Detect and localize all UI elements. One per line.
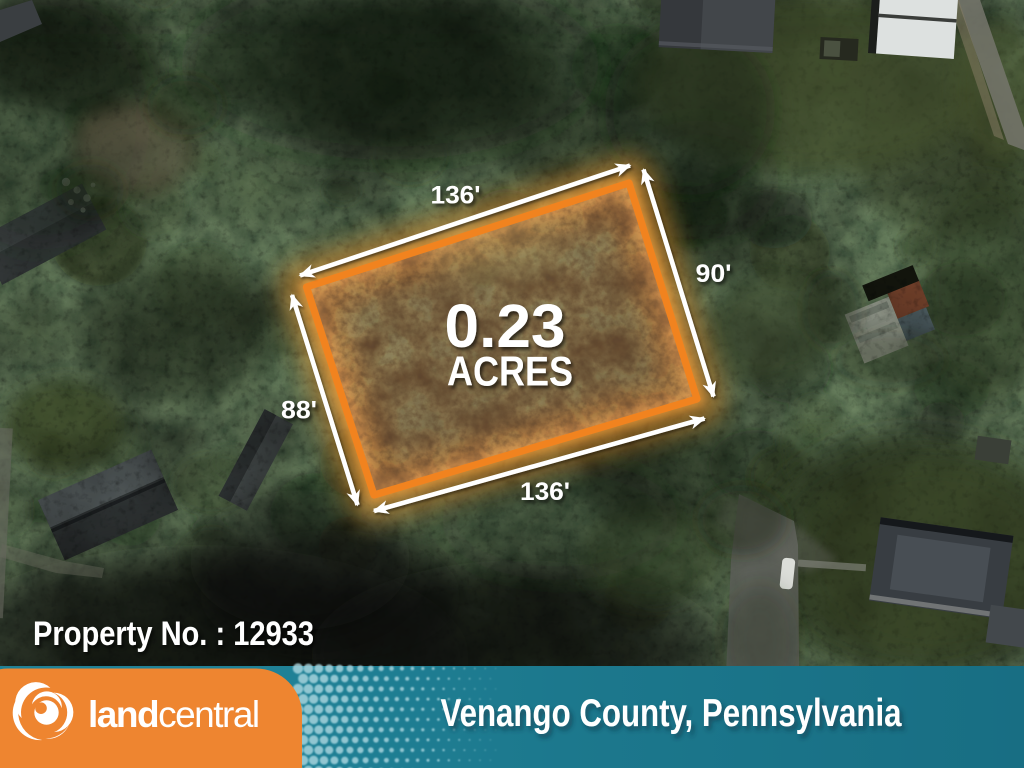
svg-text:ACRES: ACRES [447,348,573,395]
svg-text:136': 136' [520,478,570,506]
svg-text:90': 90' [696,260,732,288]
svg-text:landcentral: landcentral [88,694,259,735]
svg-text:136': 136' [431,182,481,210]
svg-text:Property No. : 12933: Property No. : 12933 [33,615,314,653]
svg-text:Venango County, Pennsylvania: Venango County, Pennsylvania [441,692,902,735]
svg-text:88': 88' [281,397,317,425]
